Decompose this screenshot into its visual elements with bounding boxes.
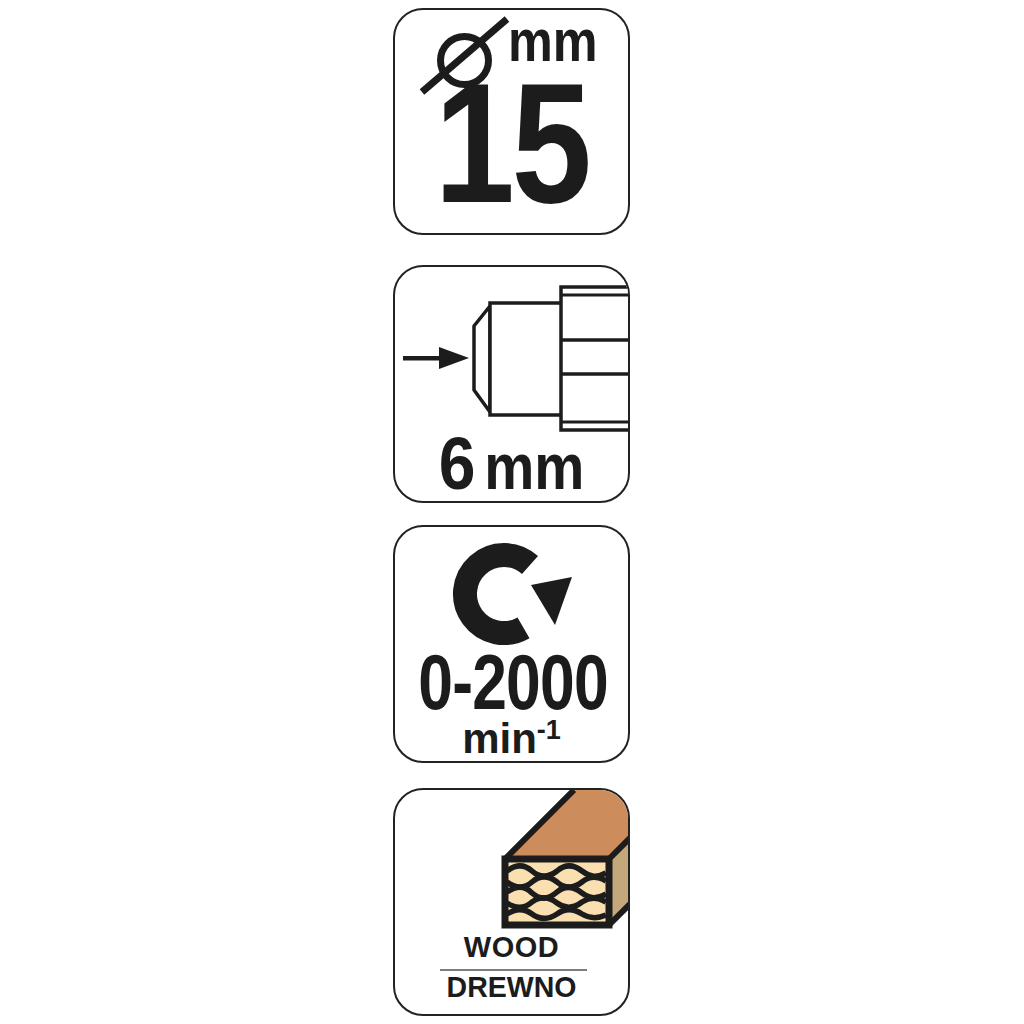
arrow-right-icon — [403, 347, 469, 369]
shank-unit-label: mm — [484, 431, 584, 503]
speed-unit-label: min-1 — [395, 709, 628, 760]
shank-size-text: 6mm — [409, 426, 614, 501]
spec-card-diameter: mm 15 — [393, 8, 630, 235]
spec-card-speed: 0-2000 min-1 — [393, 525, 630, 763]
material-label-pl: DREWNO — [401, 972, 622, 1002]
spec-card-material: WOOD DREWNO — [393, 788, 630, 1016]
spec-card-shank: 6mm — [393, 265, 630, 503]
diameter-value: 15 — [412, 58, 610, 228]
speed-unit-base: min — [462, 715, 537, 762]
spec-label-strip: mm 15 6mm 0-2 — [0, 0, 1024, 1024]
shank-value: 6 — [439, 421, 476, 503]
speed-unit-exponent: -1 — [537, 715, 561, 745]
material-label-en: WOOD — [395, 933, 628, 962]
